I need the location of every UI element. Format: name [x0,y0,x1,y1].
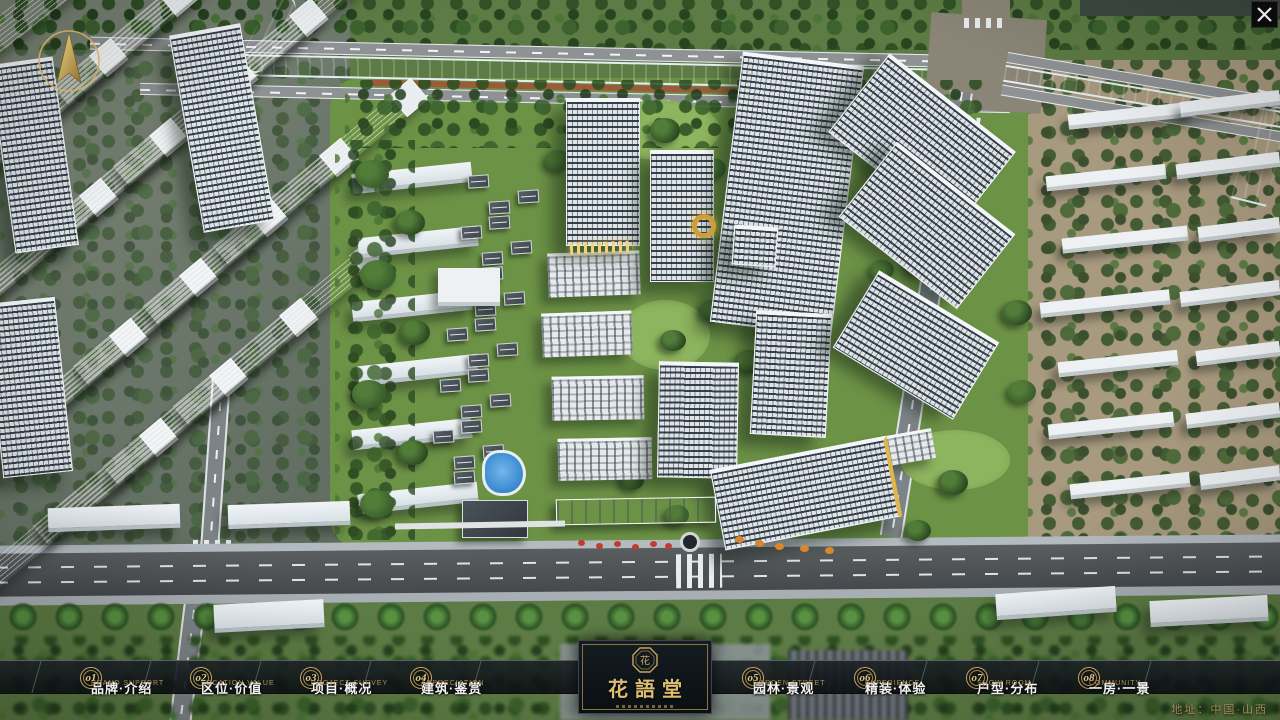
project-logo-button[interactable]: 花 花語堂 [578,640,712,714]
menu-label-en: APPRECIATION [421,680,485,687]
district-slab [1046,164,1167,191]
district-slab [1199,465,1280,490]
district-slab [1175,152,1280,180]
autumn-shrub [825,547,834,554]
masterplan-3d-view[interactable] [0,0,1280,720]
project-name: 花語堂 [608,673,689,702]
district-slab [1048,411,1175,439]
menu-brand-intro[interactable]: o1 品牌·介绍 BRAND SUPPORT [36,661,146,695]
sales-presentation-window: o1 品牌·介绍 BRAND SUPPORT o2 区位·价值 LOCATION… [0,0,1280,720]
district-slab [1062,225,1189,253]
svg-text:花: 花 [640,654,650,667]
autumn-shrub [735,536,744,543]
district-slab [1197,217,1280,242]
avenue-slab-2 [228,501,351,529]
close-icon[interactable] [1251,1,1278,28]
flower-bed [632,544,639,550]
menu-garden-landscape[interactable]: o5 园林·景观 GARDEN STREET [698,661,808,695]
menu-architecture[interactable]: o4 建筑·鉴赏 APPRECIATION [366,661,476,695]
avenue-slab-1 [48,504,181,533]
project-address: 地址：中国·山西 [1171,701,1268,717]
autumn-shrub [800,545,809,552]
district-slab [1185,402,1280,428]
menu-project-survey[interactable]: o3 项目·概况 PROJECT SURVEY [256,661,366,695]
flower-bed [596,543,603,549]
autumn-shrub [755,540,764,547]
tree-clump [905,520,931,541]
menu-label-en: SHOW ROOM [977,680,1032,687]
district-slab [1070,472,1191,499]
menu-location-value[interactable]: o2 区位·价值 LOCATION VALUE [146,661,256,695]
flower-bed [665,543,672,549]
octagonal-seal-icon: 花 [632,647,658,673]
top-right-rooftop [1080,0,1280,16]
logo-subtext-rule [616,705,674,708]
district-slab [1195,341,1280,366]
menu-room-views[interactable]: o8 一房·一景 COMMUNITY [1034,661,1144,695]
tree-clump [938,470,968,495]
district-slab [1058,350,1179,377]
flower-bed [650,541,657,547]
menu-label-en: COMMUNITY [1089,680,1141,687]
menu-floorplans[interactable]: o7 户型·分布 SHOW ROOM [922,661,1032,695]
right-district-buildings [1000,60,1280,560]
flower-bed [614,541,621,547]
district-slab [1179,90,1280,117]
menu-label-en: EXPERIENCE [865,680,920,687]
menu-interior-experience[interactable]: o6 精装·体验 EXPERIENCE [810,661,920,695]
district-slab [1179,280,1280,307]
district-slab [1068,101,1197,129]
compass-north-icon [36,28,102,94]
avenue-slab-3 [213,599,324,633]
autumn-shrub [775,543,784,550]
district-slab [1040,289,1171,318]
flower-bed [578,540,585,546]
